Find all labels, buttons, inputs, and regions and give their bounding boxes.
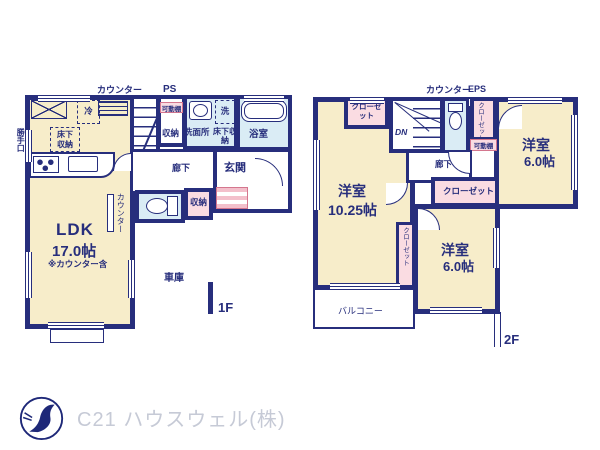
bathroom-label: 浴室 [249, 130, 268, 141]
underfloor-ldk-label: 床下収納 [54, 130, 76, 148]
eaves-line [494, 312, 501, 347]
floor-1f-bar [208, 282, 213, 314]
eps-label: EPS [468, 84, 486, 94]
garage-label: 車庫 [164, 273, 184, 285]
back-door-label: 勝手口 [16, 128, 25, 152]
room-main-size-label: 10.25帖 [328, 202, 377, 218]
washer-label: 洗 [221, 107, 230, 117]
fridge-label: 冷 [84, 107, 93, 117]
kitchen-sink-icon [68, 156, 98, 172]
window [38, 95, 90, 102]
counter-side-label: カウンター [116, 193, 125, 233]
toilet-bowl-icon [146, 198, 168, 214]
company-footer: C21 ハウスウェル(株) [18, 392, 418, 442]
counter-hatch-1f [98, 101, 128, 116]
window [493, 228, 500, 268]
closet-top-left-label: クローゼット [350, 103, 383, 120]
ldk-size-label: 17.0帖 [52, 243, 96, 260]
room-top-right-size-label: 6.0帖 [524, 155, 555, 170]
window [128, 260, 135, 298]
floorplan-2f: カウンター EPS DN クローゼット クローゼット 可動棚 廊下 クローゼット… [300, 0, 600, 360]
movable-shelf-1f: 可動棚 [160, 102, 183, 113]
closet-right-2f [470, 97, 497, 141]
window [350, 97, 384, 104]
entrance-steps [216, 187, 248, 209]
stairs-dn-label: DN [395, 128, 407, 138]
wall-cabinet-icon [31, 100, 67, 119]
stairs-2f-treads [413, 100, 441, 150]
room-main-label: 洋室 [338, 183, 366, 199]
storage-stair-label: 収納 [162, 129, 179, 139]
ps-label: PS [163, 84, 176, 96]
room-top-right-label: 洋室 [522, 137, 550, 153]
bathtub-inner-icon [244, 103, 284, 119]
floor-2f-label: 2F [504, 333, 519, 348]
closet-between-label: クローゼット [401, 227, 408, 266]
window [313, 140, 320, 210]
balcony-label: バルコニー [338, 306, 383, 316]
window [571, 115, 578, 190]
underfloor-ldk-box: 床下収納 [50, 127, 80, 152]
ldk-name-label: LDK [56, 220, 94, 240]
counter-top-label-2f: カウンター [426, 85, 471, 95]
company-name-label: C21 ハウスウェル(株) [77, 403, 286, 432]
closet-mid-label: クローゼット [443, 187, 494, 197]
ldk-note-label: ※カウンター含 [48, 260, 107, 270]
hallway-1f-label: 廊下 [172, 163, 190, 173]
toilet-2f-bowl-icon [449, 112, 462, 130]
sink-bowl-icon [193, 104, 208, 117]
window [508, 97, 562, 104]
underfloor-wash-label: 床下収納 [212, 127, 238, 145]
stove-icon [33, 156, 59, 173]
window [48, 322, 104, 329]
toilet-2f-tank-icon [448, 103, 463, 112]
back-door-opening [25, 130, 32, 162]
washer-box: 洗 [215, 100, 235, 124]
storage-hall-label: 収納 [190, 198, 207, 208]
fridge-box: 冷 [77, 100, 100, 124]
company-logo-bird-icon [18, 394, 65, 441]
closet-right-label: クローゼット [476, 102, 483, 141]
window [244, 95, 284, 102]
room-bottom-right-size-label: 6.0帖 [443, 260, 474, 275]
room-bottom-right-label: 洋室 [441, 242, 469, 258]
terrace-step [50, 329, 104, 343]
floorplan-1f: カウンター PS UP 可動棚 収納 洗面所 洗 床下収納 浴室 廊下 収納 玄… [0, 0, 310, 360]
balcony-door-window [330, 283, 400, 290]
window [430, 307, 482, 314]
floor-1f-label: 1F [218, 301, 233, 316]
counter-top-label-1f: カウンター [97, 85, 142, 95]
movable-shelf-2f: 可動棚 [470, 139, 497, 151]
toilet-tank-icon [167, 196, 178, 216]
side-counter-icon [107, 194, 114, 232]
washroom-label: 洗面所 [184, 128, 210, 138]
entrance-label: 玄関 [224, 162, 246, 175]
window [25, 252, 32, 298]
